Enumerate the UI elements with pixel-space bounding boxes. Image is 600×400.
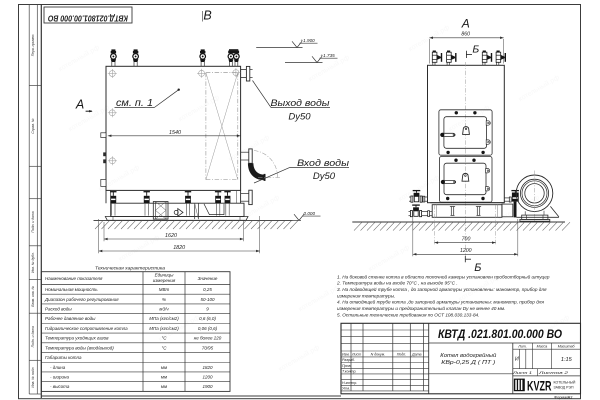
svg-text:КВТД.021801.00.000 ВО: КВТД.021801.00.000 ВО <box>47 13 128 22</box>
svg-text:Подп.: Подп. <box>397 352 407 356</box>
svg-text:KVZR: KVZR <box>527 377 552 393</box>
svg-text:Единицы: Единицы <box>155 273 175 278</box>
svg-text:Диапазон рабочего регулировани: Диапазон рабочего регулирования <box>44 297 119 302</box>
svg-text:860: 860 <box>461 32 470 38</box>
svg-text:Лит.: Лит. <box>517 344 526 348</box>
svg-text:+1.735: +1.735 <box>321 53 336 58</box>
svg-text:1540: 1540 <box>169 130 181 136</box>
svg-text:м3/ч: м3/ч <box>159 306 169 311</box>
svg-text:Температура воды (вход/выход): Температура воды (вход/выход) <box>45 345 114 350</box>
svg-text:МПа (кгс/см2): МПа (кгс/см2) <box>149 326 179 331</box>
svg-text:1820: 1820 <box>202 365 213 370</box>
svg-text:1:15: 1:15 <box>561 357 573 363</box>
svg-text:Б: Б <box>474 262 481 274</box>
svg-text:70/95: 70/95 <box>202 345 214 350</box>
svg-text:Лист 1: Лист 1 <box>512 371 532 375</box>
svg-text:°С: °С <box>161 336 167 341</box>
svg-text:измерения температуры и предох: измерения температуры и предохранительны… <box>337 305 505 311</box>
svg-text:Дата: Дата <box>411 352 421 356</box>
svg-text:Подп. и дата: Подп. и дата <box>31 326 35 347</box>
svg-text:Изм.: Изм. <box>342 352 350 356</box>
svg-text:Габариты котла: Габариты котла <box>45 355 82 360</box>
svg-text:не более 220: не более 220 <box>194 336 222 341</box>
svg-text:- ширина: - ширина <box>45 375 69 380</box>
svg-text:мм: мм <box>161 384 167 389</box>
svg-text:Расход воды: Расход воды <box>45 306 72 311</box>
svg-text:1900: 1900 <box>202 384 213 389</box>
svg-text:°С: °С <box>161 345 167 350</box>
svg-text:Значение: Значение <box>198 276 218 281</box>
svg-text:%: % <box>162 297 166 302</box>
svg-text:А: А <box>75 97 84 111</box>
svg-text:0.000: 0.000 <box>304 211 316 216</box>
svg-text:+1.900: +1.900 <box>301 38 316 43</box>
svg-text:КОТЕЛЬНЫЙ: КОТЕЛЬНЫЙ <box>554 381 576 385</box>
svg-text:Номинальная мощность: Номинальная мощность <box>45 287 98 292</box>
svg-text:Масса: Масса <box>537 344 548 348</box>
svg-text:4. На отводящей трубе котла ,: 4. На отводящей трубе котла ,до запорной… <box>337 299 544 305</box>
svg-text:Взам. инв. №: Взам. инв. № <box>31 285 35 306</box>
svg-text:мм: мм <box>161 365 167 370</box>
svg-text:Н.контр.: Н.контр. <box>342 381 357 385</box>
svg-text:1820: 1820 <box>173 245 185 251</box>
svg-text:Dy50: Dy50 <box>288 112 311 123</box>
svg-text:Масштаб: Масштаб <box>558 344 576 348</box>
svg-text:В: В <box>203 9 211 23</box>
svg-text:Т.контр.: Т.контр. <box>342 370 357 374</box>
svg-text:- длина: - длина <box>45 365 66 370</box>
svg-text:1620: 1620 <box>165 233 177 239</box>
svg-text:ЗАВОД РЭП: ЗАВОД РЭП <box>554 386 575 390</box>
svg-text:Рабочее давление воды: Рабочее давление воды <box>45 316 96 321</box>
svg-text:50-100: 50-100 <box>200 297 215 302</box>
svg-text:0,25: 0,25 <box>203 287 212 292</box>
svg-text:И: И <box>515 357 519 363</box>
svg-text:измерения температуры.: измерения температуры. <box>337 293 395 298</box>
svg-text:Перв. примен.: Перв. примен. <box>31 34 35 57</box>
svg-text:Подп. и дата: Подп. и дата <box>31 211 35 232</box>
svg-text:А3: А3 <box>567 394 574 399</box>
svg-text:Б: Б <box>472 44 479 56</box>
svg-text:700: 700 <box>462 236 471 242</box>
svg-text:А: А <box>461 16 470 30</box>
svg-text:0,6 (6,0): 0,6 (6,0) <box>199 316 216 321</box>
svg-text:Справ. №: Справ. № <box>31 118 35 134</box>
svg-text:Котел водогрейный: Котел водогрейный <box>440 352 496 359</box>
svg-text:N докум.: N докум. <box>371 352 386 356</box>
svg-text:МПа (кгс/см2): МПа (кгс/см2) <box>149 316 179 321</box>
svg-text:Утв.: Утв. <box>342 387 350 391</box>
svg-text:Гидравлическое сопротивление к: Гидравлическое сопротивление котла <box>45 326 128 331</box>
svg-text:1. На боковой стенке котла в: 1. На боковой стенке котла в области топ… <box>337 273 550 279</box>
svg-text:1200: 1200 <box>202 375 213 380</box>
svg-text:Техническая характеристика: Техническая характеристика <box>95 265 165 271</box>
svg-text:мм: мм <box>161 375 167 380</box>
svg-text:0,06 (0,6): 0,06 (0,6) <box>198 326 218 331</box>
svg-text:5. Остальные технические треб: 5. Остальные технические требования по О… <box>337 312 479 317</box>
svg-text:1200: 1200 <box>460 248 472 254</box>
svg-text:измерения: измерения <box>153 278 176 283</box>
svg-text:Лист: Лист <box>351 352 361 356</box>
svg-text:Пров.: Пров. <box>342 364 351 368</box>
svg-text:Инв. № дубл.: Инв. № дубл. <box>31 252 35 273</box>
svg-text:Dy50: Dy50 <box>313 171 336 182</box>
svg-text:Листов 2: Листов 2 <box>537 371 569 375</box>
svg-text:КВТД .021.801.00.000 ВО: КВТД .021.801.00.000 ВО <box>438 329 562 341</box>
svg-text:Разраб.: Разраб. <box>342 358 355 362</box>
svg-text:2. Температура воды на входе: 2. Температура воды на входе 70°С , на в… <box>336 281 458 286</box>
svg-text:Температура уходящих газов: Температура уходящих газов <box>45 336 109 341</box>
svg-text:- высота: - высота <box>45 384 70 389</box>
svg-text:МВт: МВт <box>159 287 170 292</box>
svg-text:Инв. № подл.: Инв. № подл. <box>31 367 35 388</box>
svg-text:3. На подводящей трубе котла: 3. На подводящей трубе котла , до запорн… <box>337 286 547 292</box>
svg-text:КВр-0,25 Д ( ПТ ): КВр-0,25 Д ( ПТ ) <box>441 360 495 366</box>
svg-text:Наименование показателя: Наименование показателя <box>45 276 103 281</box>
